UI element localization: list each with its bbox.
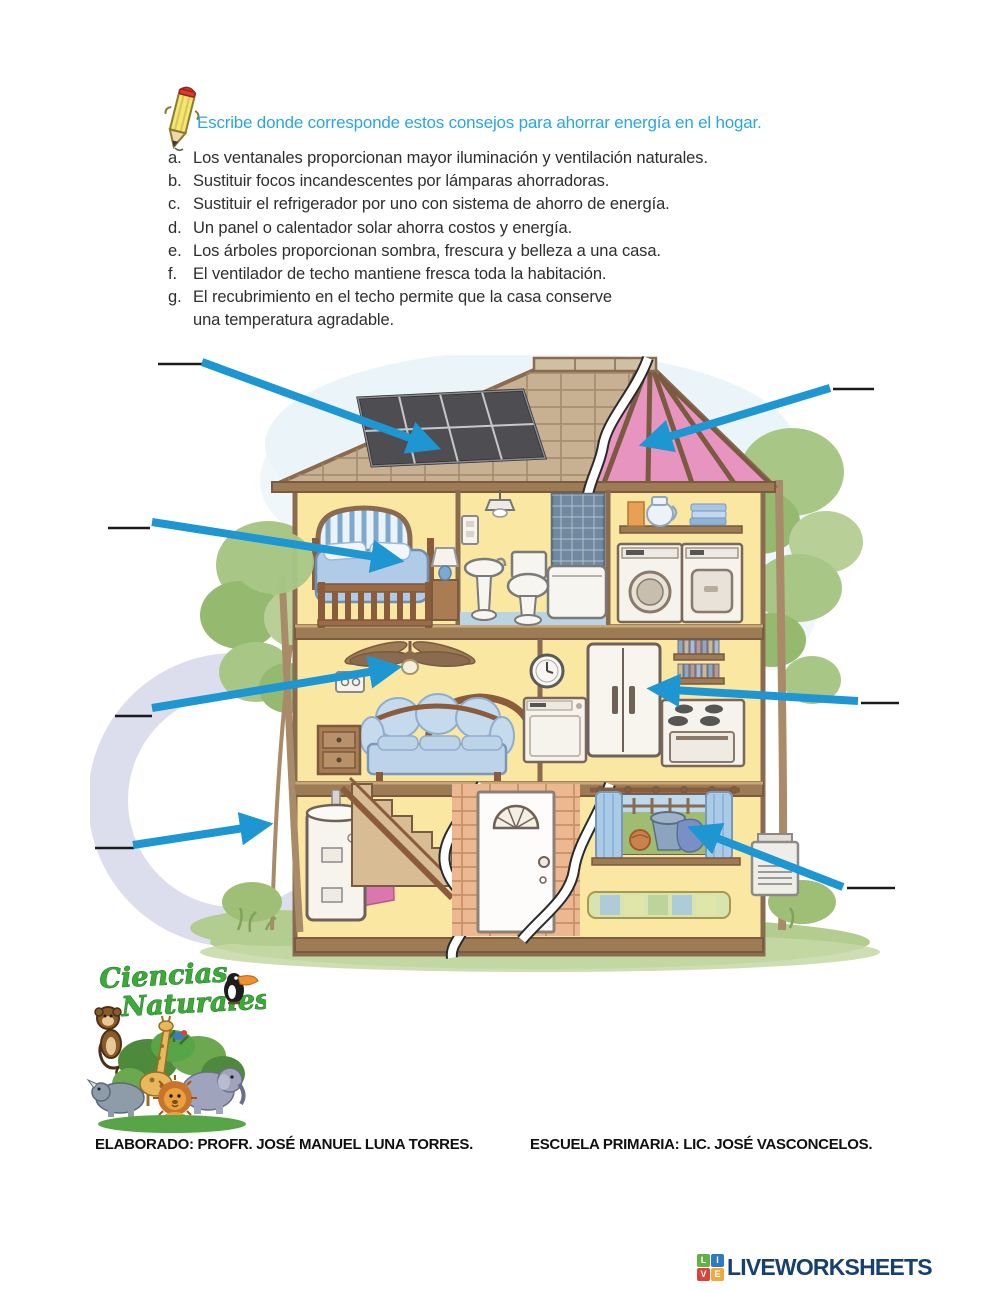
refrigerator bbox=[588, 644, 660, 756]
washer bbox=[618, 544, 682, 622]
rug bbox=[588, 892, 730, 918]
tip-text: El ventilador de techo mantiene fresca t… bbox=[193, 263, 828, 286]
nightstand-lamp bbox=[432, 548, 458, 620]
liveworksheets-logo: L I V E LIVEWORKSHEETS bbox=[697, 1254, 932, 1281]
logo-text-naturales: Naturales bbox=[120, 984, 266, 1023]
tip-text: Los árboles proporcionan sombra, frescur… bbox=[193, 240, 828, 263]
wall-clock bbox=[531, 655, 563, 687]
tip-letter: e. bbox=[168, 240, 193, 263]
ciencias-naturales-logo: Ciencias Naturales bbox=[78, 956, 266, 1134]
tip-item-g: g.El recubrimiento en el techo permite q… bbox=[168, 286, 828, 332]
tip-item-f: f.El ventilador de techo mantiene fresca… bbox=[168, 263, 828, 286]
logo-square-l: L bbox=[697, 1254, 710, 1267]
tip-text-line2: una temperatura agradable. bbox=[193, 309, 828, 332]
logo-square-e: E bbox=[711, 1268, 724, 1281]
shelf bbox=[620, 526, 742, 533]
ground-floor-window bbox=[590, 787, 740, 865]
stove bbox=[662, 700, 744, 766]
tip-text: Sustituir el refrigerador por uno con si… bbox=[193, 193, 828, 216]
tip-letter: g. bbox=[168, 286, 193, 332]
footer-elaborado: ELABORADO: PROFR. JOSÉ MANUEL LUNA TORRE… bbox=[95, 1136, 473, 1153]
sofa bbox=[360, 694, 514, 781]
end-table bbox=[318, 726, 360, 774]
tip-text: Sustituir focos incandescentes por lámpa… bbox=[193, 170, 828, 193]
eave-fascia bbox=[272, 482, 775, 492]
tip-text: El recubrimiento en el techo permite que… bbox=[193, 286, 828, 332]
worksheet-page: Escribe donde corresponde estos consejos… bbox=[0, 0, 1000, 1291]
footer-escuela: ESCUELA PRIMARIA: LIC. JOSÉ VASCONCELOS. bbox=[530, 1136, 872, 1153]
tip-item-d: d.Un panel o calentador solar ahorra cos… bbox=[168, 217, 828, 240]
tips-list: a.Los ventanales proporcionan mayor ilum… bbox=[168, 147, 828, 333]
shower bbox=[548, 494, 606, 618]
grass-mound bbox=[98, 1115, 246, 1133]
tip-item-e: e.Los árboles proporcionan sombra, fresc… bbox=[168, 240, 828, 263]
tip-letter: c. bbox=[168, 193, 193, 216]
dryer bbox=[682, 544, 742, 622]
tip-item-c: c.Sustituir el refrigerador por uno con … bbox=[168, 193, 828, 216]
tip-text: Un panel o calentador solar ahorra costo… bbox=[193, 217, 828, 240]
tip-item-b: b.Sustituir focos incandescentes por lám… bbox=[168, 170, 828, 193]
tip-letter: b. bbox=[168, 170, 193, 193]
kitchen bbox=[524, 640, 744, 766]
liveworksheets-wordmark: LIVEWORKSHEETS bbox=[727, 1254, 932, 1281]
arrow-to-trees bbox=[133, 825, 264, 845]
logo-square-v: V bbox=[697, 1268, 710, 1281]
tip-letter: d. bbox=[168, 217, 193, 240]
tip-letter: f. bbox=[168, 263, 193, 286]
dishwasher bbox=[524, 698, 586, 762]
house-illustration bbox=[90, 355, 910, 975]
logo-square-i: I bbox=[711, 1254, 724, 1267]
tip-text: Los ventanales proporcionan mayor ilumin… bbox=[193, 147, 828, 170]
tip-item-a: a.Los ventanales proporcionan mayor ilum… bbox=[168, 147, 828, 170]
instruction-text: Escribe donde corresponde estos consejos… bbox=[197, 113, 762, 133]
tip-letter: a. bbox=[168, 147, 193, 170]
liveworksheets-grid-icon: L I V E bbox=[697, 1254, 724, 1281]
wall-switch bbox=[462, 516, 478, 544]
towel-stack bbox=[690, 504, 726, 525]
